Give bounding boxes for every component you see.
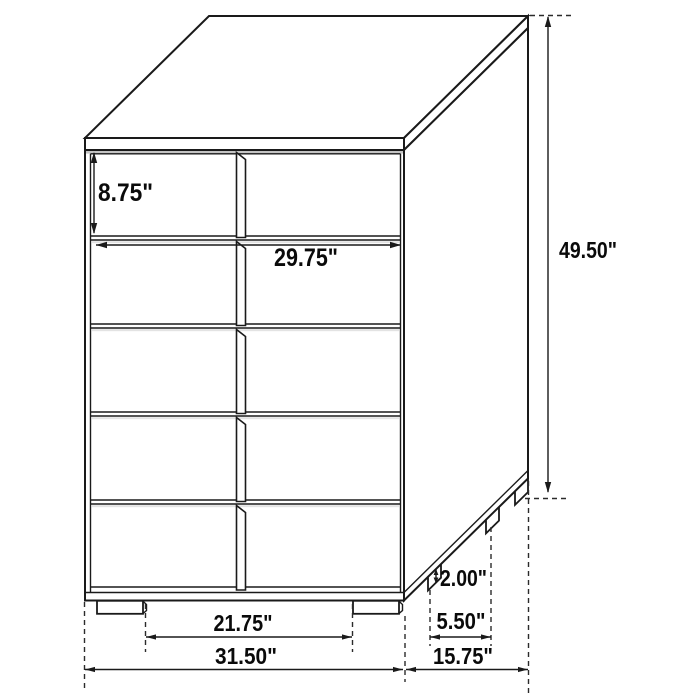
dim-label-overall-width: 31.50" [215, 643, 277, 669]
arrowhead-left [146, 634, 156, 639]
dim-label-leg-spacing-depth: 5.50" [437, 608, 486, 634]
arrowhead-left [85, 667, 95, 672]
dim-label-overall-depth: 15.75" [433, 643, 493, 669]
drawer-handle [237, 153, 246, 238]
arrowhead-up [545, 16, 551, 27]
furniture-dimension-diagram: 8.75" 29.75" 49.50" 2.00" [0, 0, 700, 700]
dim-label-leg-height: 2.00" [440, 565, 487, 591]
arrowhead-right [481, 634, 491, 639]
arrowhead-right [393, 667, 403, 672]
drawer-handles [237, 153, 246, 591]
dim-leg-height: 2.00" [434, 565, 487, 591]
drawer-separator-shadow [92, 417, 399, 419]
dim-label-leg-spacing-width: 21.75" [214, 610, 273, 636]
drawer-handle [237, 330, 246, 414]
drawer-handle [237, 418, 246, 502]
arrowhead-left [430, 634, 440, 639]
drawer-handle [237, 242, 246, 326]
leg-front-left [97, 601, 143, 614]
leg-front-right [353, 601, 399, 614]
arrowhead-down [545, 482, 551, 493]
arrowhead-right [518, 667, 528, 672]
drawer-separator-shadow [92, 329, 399, 331]
arrowhead-left [406, 667, 416, 672]
drawer-separator-shadow [92, 241, 399, 243]
drawer-handle [237, 506, 246, 591]
chest-top-edge-front [85, 138, 404, 150]
dim-overall-height: 49.50" [525, 16, 617, 499]
dim-label-drawer-height: 8.75" [98, 179, 153, 207]
chest-drawing [85, 16, 528, 614]
dim-label-drawer-width: 29.75" [274, 244, 338, 272]
dim-label-overall-height: 49.50" [559, 237, 617, 263]
drawer-separator-shadow [92, 505, 399, 507]
arrowhead-right [342, 634, 352, 639]
